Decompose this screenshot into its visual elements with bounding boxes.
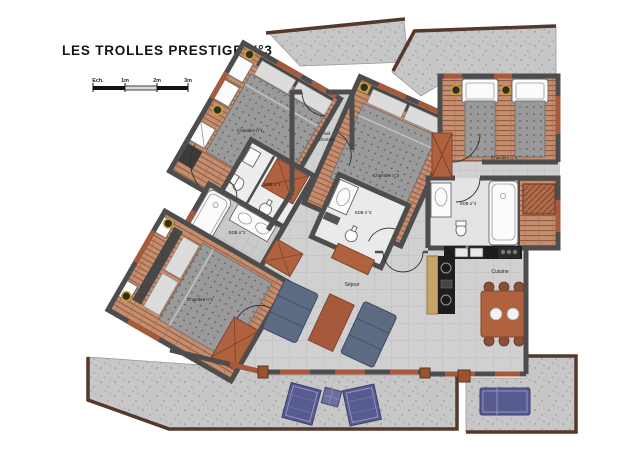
floor-plan-canvas: LES TROLLES PRESTIGE N°3 Ech. 1m 2m 3m bbox=[0, 0, 640, 452]
label-sdb-3: SDB n°3 bbox=[355, 210, 372, 215]
lamp-symbol bbox=[502, 86, 511, 95]
kitchen-sink bbox=[455, 248, 468, 257]
closet-right bbox=[520, 178, 558, 248]
lamp-symbol bbox=[452, 86, 461, 95]
label-hall-1: hall bbox=[324, 131, 331, 136]
dining-table bbox=[481, 291, 527, 337]
label-chambre-2: Chambre n°2 bbox=[187, 297, 213, 302]
label-hall-2: d'entrée bbox=[319, 137, 335, 142]
room-sdb-4 bbox=[428, 178, 520, 248]
scale-label: Ech. bbox=[92, 78, 104, 84]
hall-wardrobe bbox=[432, 133, 452, 177]
plate bbox=[490, 308, 502, 320]
bathtub bbox=[489, 181, 518, 245]
label-sdb-4: SDB n°4 bbox=[460, 201, 477, 206]
scale-bar: Ech. 1m 2m 3m bbox=[92, 78, 192, 92]
pillar bbox=[420, 368, 430, 378]
pillar bbox=[458, 370, 470, 382]
balcony-lounger bbox=[480, 388, 530, 415]
label-chambre-4: Chambre n°4 bbox=[491, 155, 517, 160]
pillar bbox=[258, 366, 268, 378]
label-sejour: Séjour bbox=[345, 282, 360, 288]
plate bbox=[507, 308, 519, 320]
storage-unit bbox=[523, 184, 555, 214]
dining-set bbox=[481, 282, 527, 346]
tall-cabinet bbox=[427, 256, 438, 314]
label-sdb-2: SDB n°2 bbox=[229, 230, 246, 235]
label-chambre-1: Chambre n°1 bbox=[237, 128, 263, 133]
room-chambre-4 bbox=[440, 76, 558, 162]
lounger-b bbox=[343, 384, 382, 426]
label-sdb-1: SDB n°1 bbox=[264, 182, 281, 187]
label-cuisine: Cuisine bbox=[491, 269, 508, 275]
label-chambre-3: Chambre n°3 bbox=[373, 173, 399, 178]
floor-plan-page: LES TROLLES PRESTIGE N°3 Ech. 1m 2m 3m bbox=[0, 0, 640, 452]
